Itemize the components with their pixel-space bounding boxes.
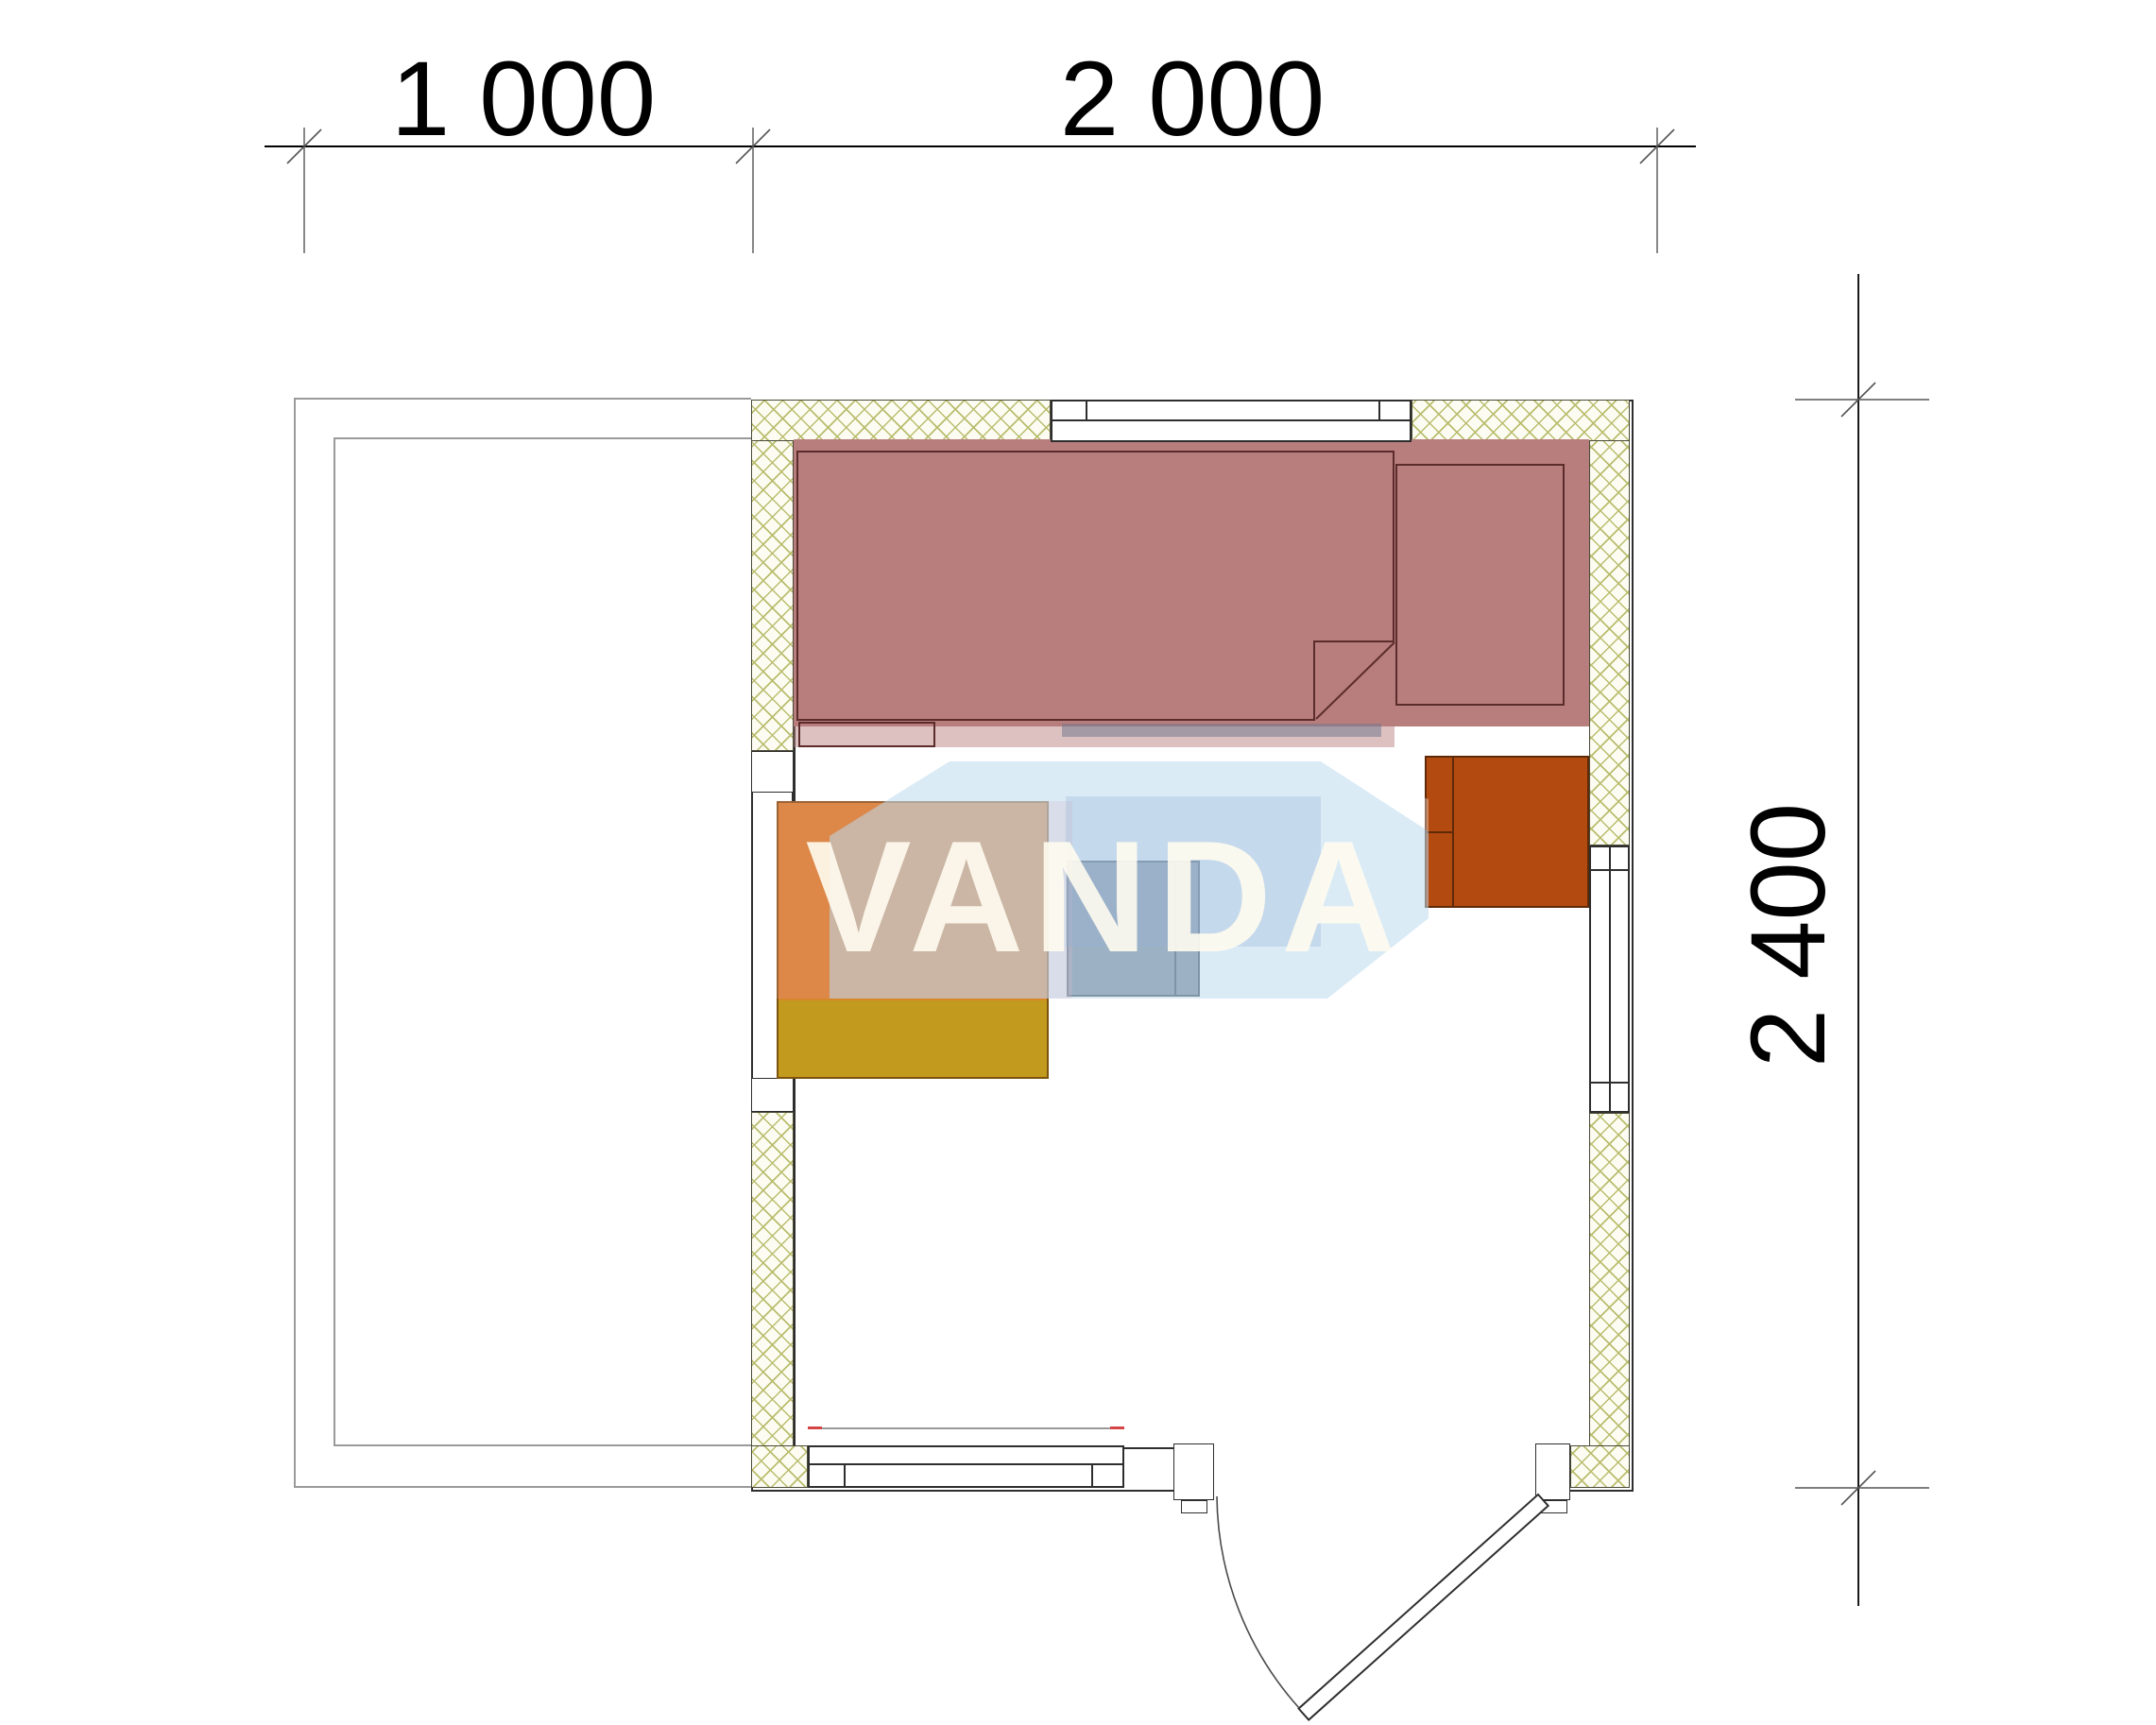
dimension-label-terrace-width: 1 000 [334, 38, 712, 160]
door-leaf [1299, 1494, 1549, 1720]
bench-diagonal-line [1316, 642, 1395, 719]
door-swing-arc [1217, 1496, 1299, 1708]
floor-plan-page: { "drawing": { "type": "architectural-fl… [0, 0, 2156, 1725]
dimension-label-building-depth: 2 400 [1732, 718, 1845, 1153]
dimension-label-building-width: 2 000 [1003, 38, 1381, 160]
